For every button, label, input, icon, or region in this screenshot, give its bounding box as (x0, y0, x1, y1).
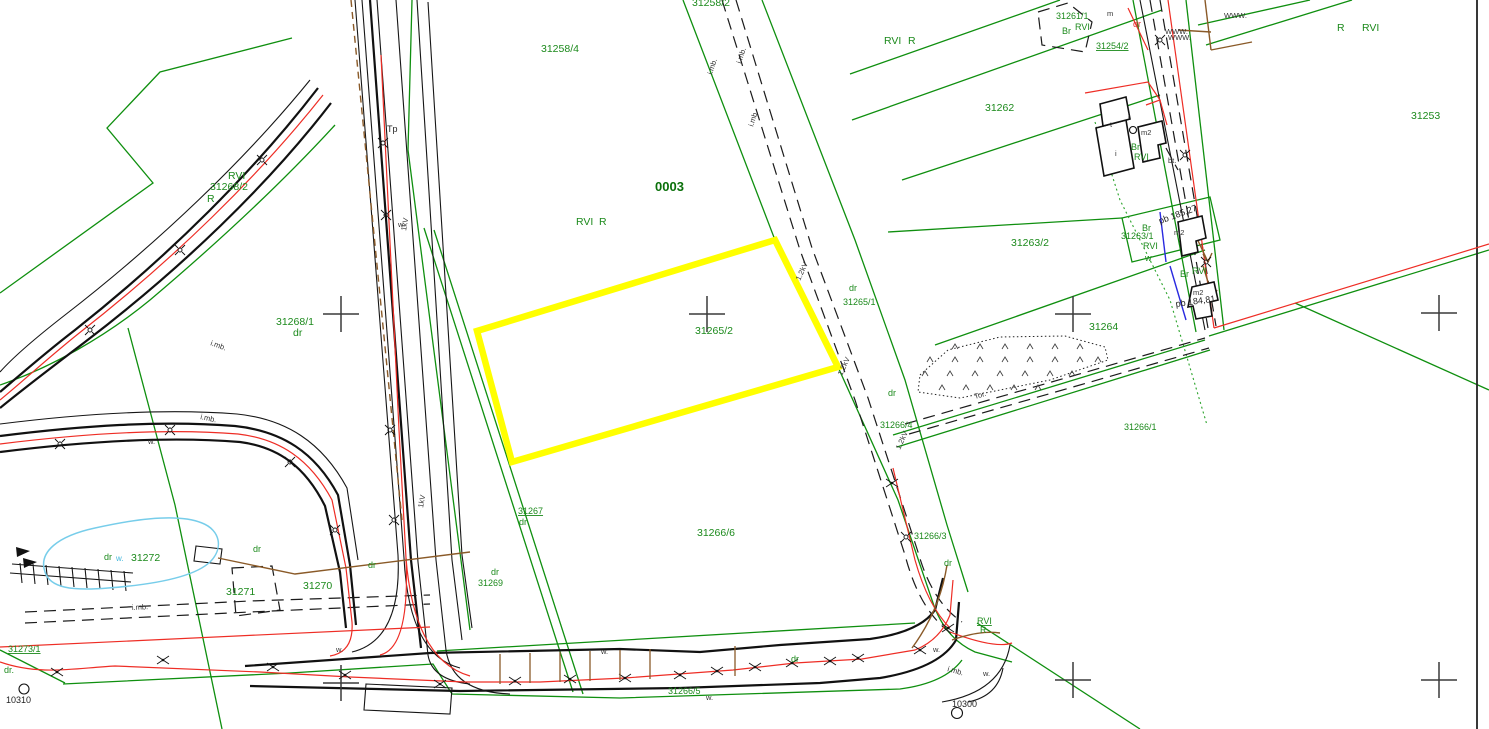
scrub-symbol-icon (963, 385, 969, 390)
parcel-boundary-line (0, 125, 335, 385)
map-label-w-: w. (932, 645, 940, 654)
scrub-symbol-icon (977, 357, 983, 362)
map-label-dr: dr (791, 654, 799, 664)
grid-cross-icon (1421, 295, 1457, 331)
utility-red-line (0, 627, 430, 647)
selected-parcel-highlight[interactable] (477, 240, 838, 462)
map-label-10310: 10310 (6, 695, 31, 705)
road-axis-dashed (1150, 0, 1208, 328)
scrub-symbol-icon (987, 385, 993, 390)
boundary-x-dot (716, 670, 719, 673)
map-label-31266-1: 31266/1 (1124, 422, 1157, 432)
scrub-symbol-icon (1052, 344, 1058, 349)
map-label-31269: 31269 (478, 578, 503, 588)
map-label-31266-5: 31266/5 (668, 686, 701, 696)
map-label-m2: m2 (1174, 228, 1184, 237)
utility-red-line (893, 468, 950, 628)
map-label-31273-1: 31273/1 (8, 644, 41, 654)
scrub-symbol-icon (1069, 371, 1075, 376)
map-label-31261-1: 31261/1 (1056, 11, 1089, 21)
pole-rays-icon (85, 325, 95, 335)
parcel-boundary-line (850, 0, 1060, 74)
map-label-w-: w. (335, 645, 343, 654)
map-label-rvi: RVI (884, 35, 901, 47)
road-axis-dashed (905, 338, 1205, 424)
map-label-31264: 31264 (1089, 321, 1118, 333)
utility-red-line (1128, 8, 1148, 50)
map-label-1kv: 1kV (399, 217, 410, 231)
map-label-1kv: 1kV (416, 494, 427, 508)
boundary-x-dot (919, 649, 922, 652)
road-edge-line (0, 424, 356, 625)
map-label-i-mb-: i.mb. (746, 109, 760, 127)
map-label-31270: 31270 (303, 580, 332, 592)
map-label-31268-2: 31268/2 (210, 181, 248, 193)
scrub-symbol-icon (1077, 357, 1083, 362)
map-label-i-mb-: i.mb. (200, 412, 218, 424)
road-edge-line (0, 412, 358, 560)
map-label-31254-2: 31254/2 (1096, 41, 1129, 51)
map-label-r: R (980, 625, 987, 635)
survey-point-icon (1130, 127, 1137, 134)
pole-rays-icon (1180, 150, 1190, 160)
survey-point-icon (19, 684, 29, 694)
parcel-boundary-line (897, 350, 1210, 447)
boundary-x-dot (624, 677, 627, 680)
parcel-boundary-line (1209, 250, 1489, 336)
scrub-symbol-icon (939, 385, 945, 390)
map-label-dr: dr (849, 283, 857, 293)
scrub-symbol-icon (997, 371, 1003, 376)
map-label-i-mb-: i.mb. (734, 46, 748, 64)
parcel-boundary-line (935, 250, 1205, 345)
scrub-symbol-icon (1027, 344, 1033, 349)
map-label-r: R (908, 35, 916, 47)
parcel-boundary-line (893, 340, 1205, 435)
map-label-w-: w. (982, 669, 990, 678)
map-label-31263-1: 31263/1 (1121, 231, 1154, 241)
water-symbol (16, 547, 30, 557)
map-label-10300: 10300 (952, 699, 977, 709)
boundary-x-dot (162, 659, 165, 662)
pole-rays-icon (389, 515, 399, 525)
map-label-rvi: RVI (1362, 22, 1379, 34)
map-label-31258-2: 31258/2 (692, 0, 730, 9)
building-outline (1096, 120, 1134, 176)
map-label-dr: dr (944, 558, 952, 568)
road-axis-dashed (909, 348, 1209, 434)
grid-cross-icon (323, 296, 359, 332)
map-label-dr: dr (253, 544, 261, 554)
map-label-31253: 31253 (1411, 110, 1440, 122)
map-label-w-: w. (115, 554, 124, 563)
scrub-symbol-icon (1022, 371, 1028, 376)
map-label-m2: m2 (1141, 128, 1151, 137)
boundary-x-dot (857, 657, 860, 660)
map-label-dr: dr (368, 560, 376, 570)
road-edge-line (0, 80, 310, 372)
map-label-31263-2: 31263/2 (1011, 237, 1049, 249)
map-label-rvi: RVI (1075, 22, 1090, 32)
map-label-dr: dr (491, 567, 499, 577)
pole-icon (88, 328, 92, 332)
map-label-rvi: RVI (576, 216, 593, 228)
boundary-x-dot (947, 627, 950, 630)
pole-icon (381, 141, 385, 145)
utility-red-line (0, 580, 953, 682)
pole-rays-icon (175, 245, 185, 255)
map-label-dr-: dr. (4, 665, 14, 675)
map-label-br: Br (1062, 26, 1071, 36)
utility-red-line (1214, 244, 1489, 328)
map-label-dr: dr (1133, 19, 1141, 29)
road-edge-line (396, 0, 510, 694)
scrub-symbol-icon (1095, 357, 1101, 362)
road-edge-line (370, 0, 421, 648)
map-label-br: Br (1131, 142, 1140, 152)
map-label-rvi: RVI (1134, 152, 1149, 162)
scrub-symbol-icon (927, 357, 933, 362)
map-label-w-: w. (147, 437, 155, 446)
parcel-boundary-line (0, 38, 292, 293)
boundary-x-dot (569, 678, 572, 681)
map-label-i-mb-: i.mb. (705, 57, 719, 75)
map-label-31266-4: 31266/4 (880, 420, 913, 430)
road-edge-line (245, 578, 943, 666)
map-label-dr: dr (104, 552, 112, 562)
boundary-x-dot (829, 660, 832, 663)
map-label-r: R (1337, 22, 1345, 34)
map-label-bt-: bt. (1168, 156, 1176, 165)
map-label-w-: w. (600, 647, 608, 656)
grid-cross-icon (1421, 662, 1457, 698)
water-symbol (23, 558, 37, 568)
map-label-31267: 31267 (518, 506, 543, 516)
pole-icon (1158, 38, 1162, 42)
map-label-i-mb-: i.mb. (946, 664, 964, 677)
map-label-dr: dr (519, 517, 527, 527)
cadastral-map[interactable]: 31258/231258/4RVIR0003RVIR31261/1BrRVI31… (0, 0, 1489, 729)
map-label-1-2kv: 1.2kV (894, 430, 910, 451)
map-label-tor-: Tor. (973, 389, 987, 401)
parcel-boundary-line (1198, 0, 1310, 25)
boundary-x-dot (754, 666, 757, 669)
pole-icon (260, 158, 264, 162)
map-label-rvi: RVI (1143, 241, 1158, 251)
map-label-m: m (1107, 9, 1113, 18)
map-label-31271: 31271 (226, 586, 255, 598)
map-label-31266-3: 31266/3 (914, 531, 947, 541)
scrub-symbol-icon (1002, 344, 1008, 349)
map-label-31272: 31272 (131, 552, 160, 564)
map-label-31265-1: 31265/1 (843, 297, 876, 307)
scrub-symbol-icon (1002, 357, 1008, 362)
boundary-x-dot (679, 674, 682, 677)
map-label-rvi: RVI (1192, 266, 1207, 276)
parcel-boundary-line (437, 623, 915, 651)
parcel-boundary-line (1295, 303, 1489, 390)
parcel-boundary-line (762, 0, 968, 592)
map-label-1-2kv: 1.2kV (836, 356, 852, 377)
scrub-symbol-icon (1047, 371, 1053, 376)
fence-brown-line (1205, 0, 1211, 50)
map-label-i-mb-: i.mb. (132, 602, 149, 612)
fence-brown-line (218, 552, 470, 574)
road-edge-line (417, 0, 462, 640)
map-label-www-: WWW. (1168, 33, 1191, 42)
parcel-boundary-line (1122, 197, 1220, 262)
map-label-dr: dr (293, 327, 303, 339)
boundary-x-dot (56, 671, 59, 674)
map-label-0003: 0003 (655, 179, 684, 194)
map-canvas[interactable]: 31258/231258/4RVIR0003RVIR31261/1BrRVI31… (0, 0, 1489, 729)
scrub-symbol-icon (972, 371, 978, 376)
map-label-i-mb-: i.mb. (209, 338, 227, 352)
pole-rays-icon (165, 425, 175, 435)
boundary-x-dot (272, 666, 275, 669)
scrub-symbol-icon (947, 371, 953, 376)
scrub-symbol-icon (1052, 357, 1058, 362)
fence-brown-line (1211, 42, 1252, 50)
road-axis-dashed (25, 604, 430, 623)
map-label-31258-4: 31258/4 (541, 43, 579, 55)
map-label-1-2kv: 1.2kV (794, 261, 810, 282)
survey-point-icon (952, 708, 963, 719)
map-label-31266-6: 31266/6 (697, 527, 735, 539)
map-label-w-: w. (705, 693, 713, 702)
road-edge-line (352, 0, 398, 652)
map-label-tp: Tp (387, 124, 398, 134)
scrub-symbol-icon (1077, 344, 1083, 349)
map-label-br: Br (1180, 269, 1189, 279)
boundary-x-dot (344, 674, 347, 677)
boundary-x-dot (891, 482, 894, 485)
map-label-r: R (207, 193, 215, 205)
scrub-symbol-icon (1027, 357, 1033, 362)
road-edge-line (0, 103, 331, 408)
utility-red-line (0, 432, 352, 656)
map-label-w: w (1144, 253, 1152, 263)
boundary-x-dot (439, 683, 442, 686)
map-label-r: R (599, 216, 607, 228)
map-label-dr: dr (888, 388, 896, 398)
pole-icon (904, 535, 908, 539)
scrub-symbol-icon (977, 344, 983, 349)
fence-brown-line (912, 565, 947, 648)
pole-rays-icon (55, 439, 65, 449)
parcel-boundary-line (888, 218, 1122, 232)
pole-icon (333, 528, 337, 532)
grid-cross-icon (1055, 662, 1091, 698)
map-label-31265-2: 31265/2 (695, 325, 733, 337)
map-label-www-: WWW. (1224, 11, 1247, 20)
map-label-31262: 31262 (985, 102, 1014, 114)
scrub-symbol-icon (952, 357, 958, 362)
boundary-x-dot (514, 680, 517, 683)
parcel-boundary-line (1133, 0, 1196, 332)
road-edge-line (1140, 0, 1205, 330)
road-edge-line (0, 88, 318, 392)
